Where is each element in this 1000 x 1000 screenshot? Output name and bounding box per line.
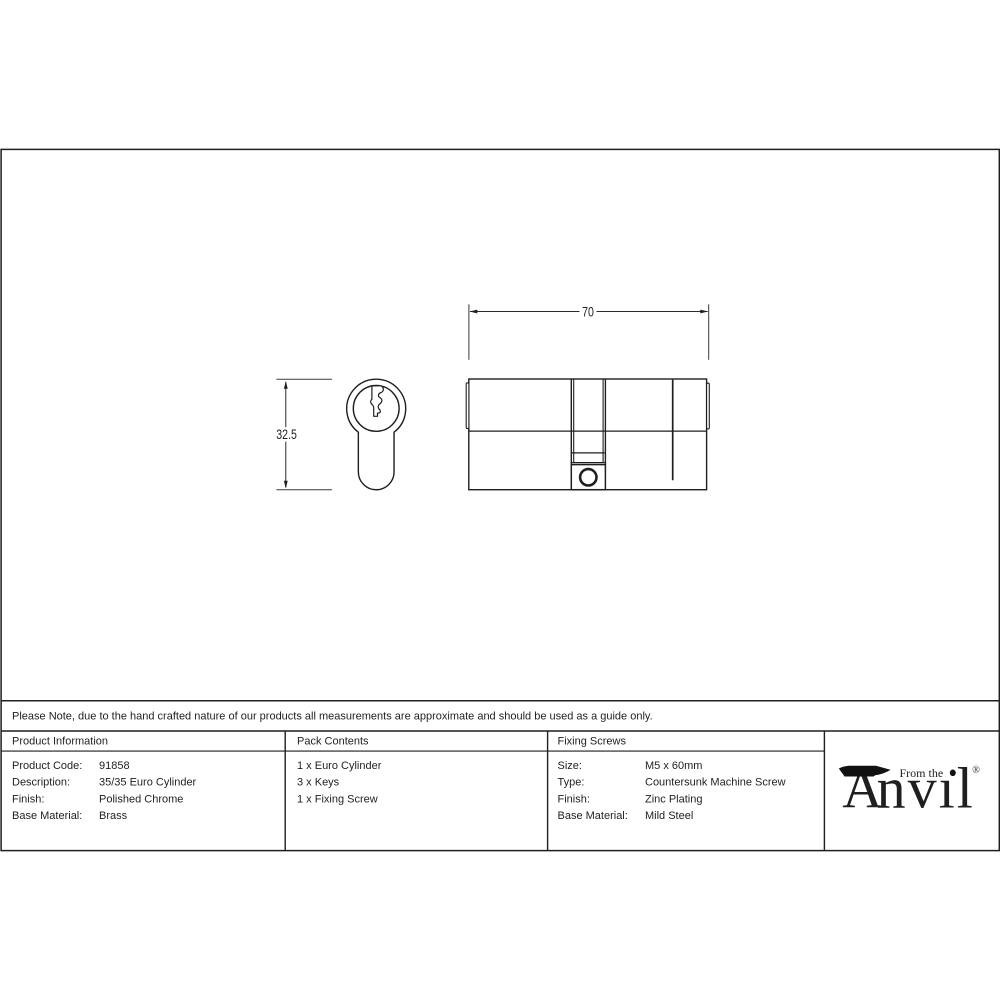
svg-text:Product Code:: Product Code: bbox=[12, 760, 82, 772]
svg-text:70: 70 bbox=[582, 304, 594, 319]
svg-text:Please Note, due to the hand c: Please Note, due to the hand crafted nat… bbox=[12, 711, 653, 723]
svg-text:Countersunk Machine Screw: Countersunk Machine Screw bbox=[645, 777, 786, 789]
svg-text:Pack Contents: Pack Contents bbox=[297, 736, 369, 748]
svg-text:35/35 Euro Cylinder: 35/35 Euro Cylinder bbox=[99, 777, 197, 789]
svg-text:91858: 91858 bbox=[99, 760, 130, 772]
svg-text:Product Information: Product Information bbox=[12, 736, 108, 748]
svg-text:3 x Keys: 3 x Keys bbox=[297, 777, 340, 789]
svg-text:Size:: Size: bbox=[558, 760, 582, 772]
svg-text:Fixing Screws: Fixing Screws bbox=[558, 736, 627, 748]
svg-text:Finish:: Finish: bbox=[558, 794, 590, 806]
svg-text:Zinc Plating: Zinc Plating bbox=[645, 794, 702, 806]
svg-text:Base Material:: Base Material: bbox=[12, 810, 82, 822]
svg-text:®: ® bbox=[972, 765, 980, 776]
svg-text:Polished Chrome: Polished Chrome bbox=[99, 794, 183, 806]
svg-text:Description:: Description: bbox=[12, 777, 70, 789]
svg-text:Brass: Brass bbox=[99, 810, 128, 822]
svg-text:32.5: 32.5 bbox=[276, 427, 297, 442]
svg-text:M5 x 60mm: M5 x 60mm bbox=[645, 760, 702, 772]
svg-text:1 x Fixing Screw: 1 x Fixing Screw bbox=[297, 794, 378, 806]
svg-text:Type:: Type: bbox=[558, 777, 585, 789]
svg-text:Finish:: Finish: bbox=[12, 794, 44, 806]
svg-text:Mild Steel: Mild Steel bbox=[645, 810, 693, 822]
svg-text:1 x Euro Cylinder: 1 x Euro Cylinder bbox=[297, 760, 382, 772]
svg-text:From the: From the bbox=[900, 766, 944, 780]
svg-text:Base Material:: Base Material: bbox=[558, 810, 628, 822]
